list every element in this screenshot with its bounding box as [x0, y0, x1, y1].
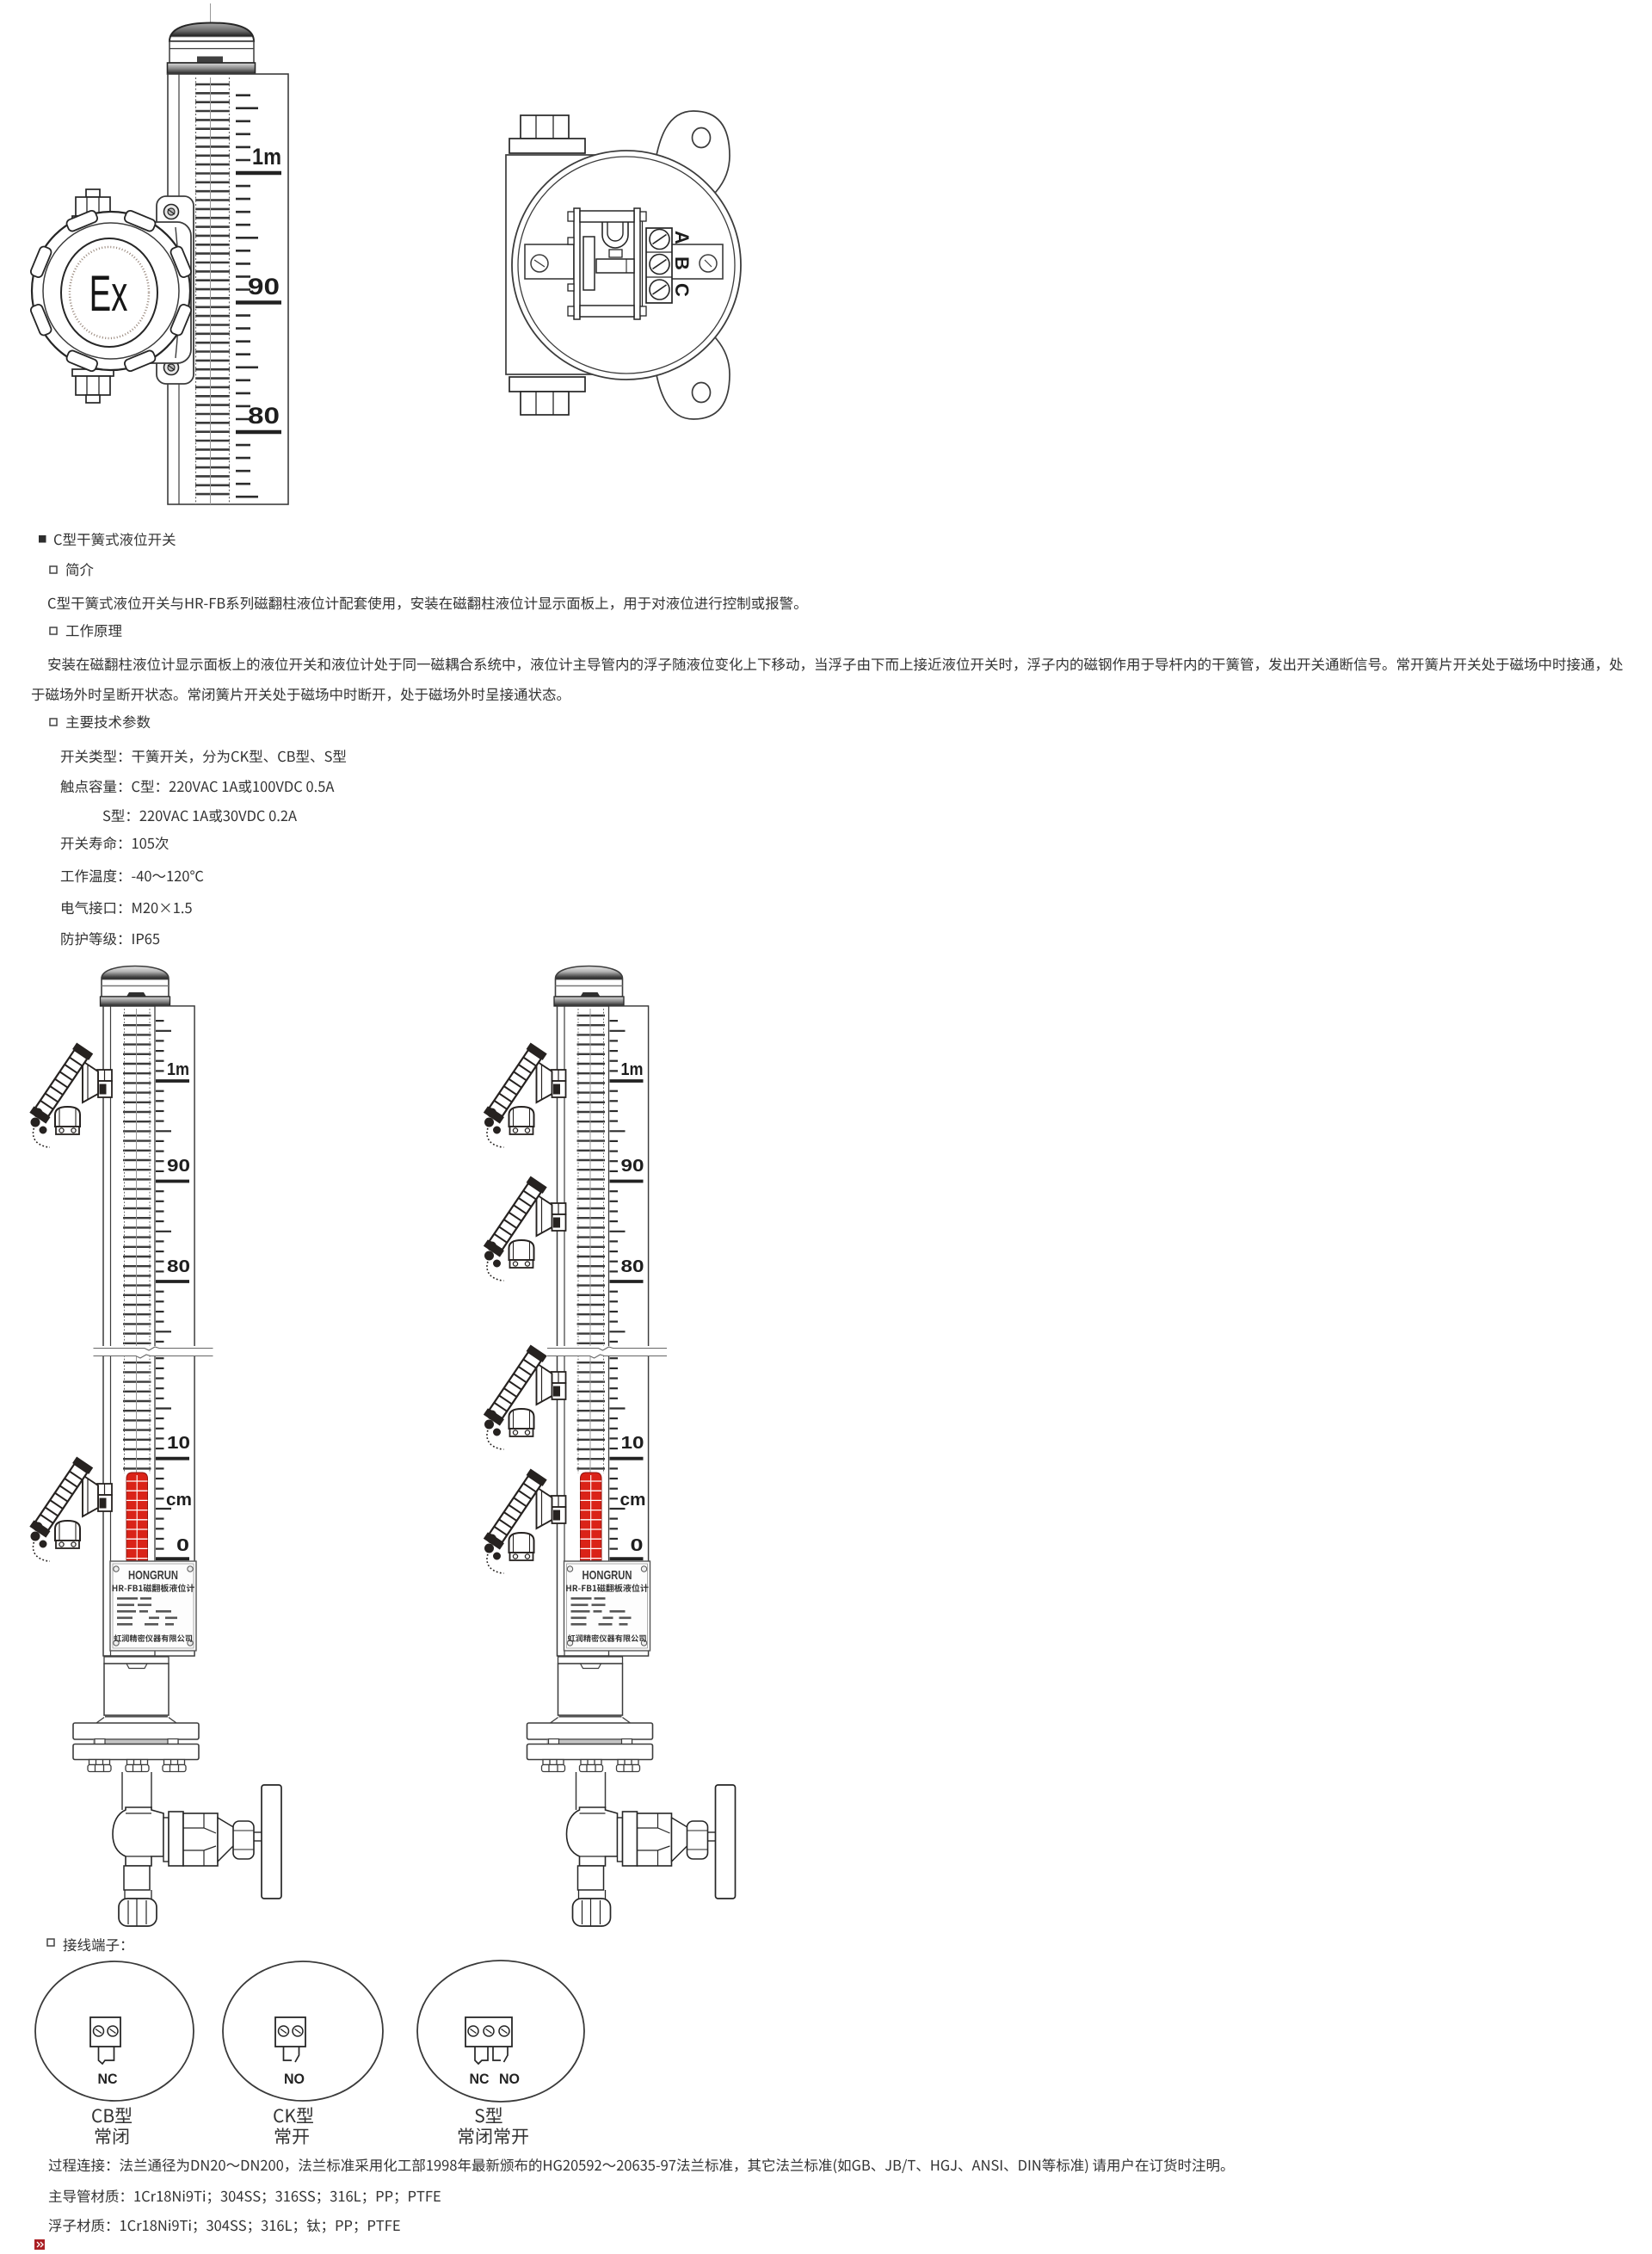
svg-text:80: 80: [621, 1257, 644, 1276]
svg-text:A: A: [671, 231, 693, 244]
svg-text:1m: 1m: [167, 1060, 189, 1079]
svg-text:NO: NO: [499, 2071, 520, 2087]
svg-text:0: 0: [176, 1536, 189, 1555]
svg-text:HONGRUN: HONGRUN: [583, 1568, 632, 1583]
svg-text:90: 90: [621, 1157, 644, 1176]
svg-text:HONGRUN: HONGRUN: [128, 1568, 178, 1583]
svg-text:1m: 1m: [252, 144, 281, 170]
svg-text:10: 10: [167, 1434, 190, 1453]
svg-text:80: 80: [248, 403, 280, 429]
svg-text:NC: NC: [470, 2071, 490, 2087]
svg-text:Ex: Ex: [89, 267, 128, 322]
svg-text:C: C: [671, 283, 693, 297]
svg-text:NO: NO: [284, 2071, 305, 2087]
svg-text:90: 90: [248, 274, 280, 300]
svg-text:cm: cm: [620, 1491, 646, 1510]
svg-text:NC: NC: [98, 2071, 118, 2087]
svg-text:1m: 1m: [621, 1060, 644, 1079]
svg-text:90: 90: [167, 1157, 190, 1176]
svg-text:10: 10: [621, 1434, 644, 1453]
svg-text:0: 0: [631, 1536, 644, 1555]
svg-text:80: 80: [167, 1257, 190, 1276]
svg-text:B: B: [671, 256, 693, 270]
svg-text:cm: cm: [166, 1491, 192, 1510]
